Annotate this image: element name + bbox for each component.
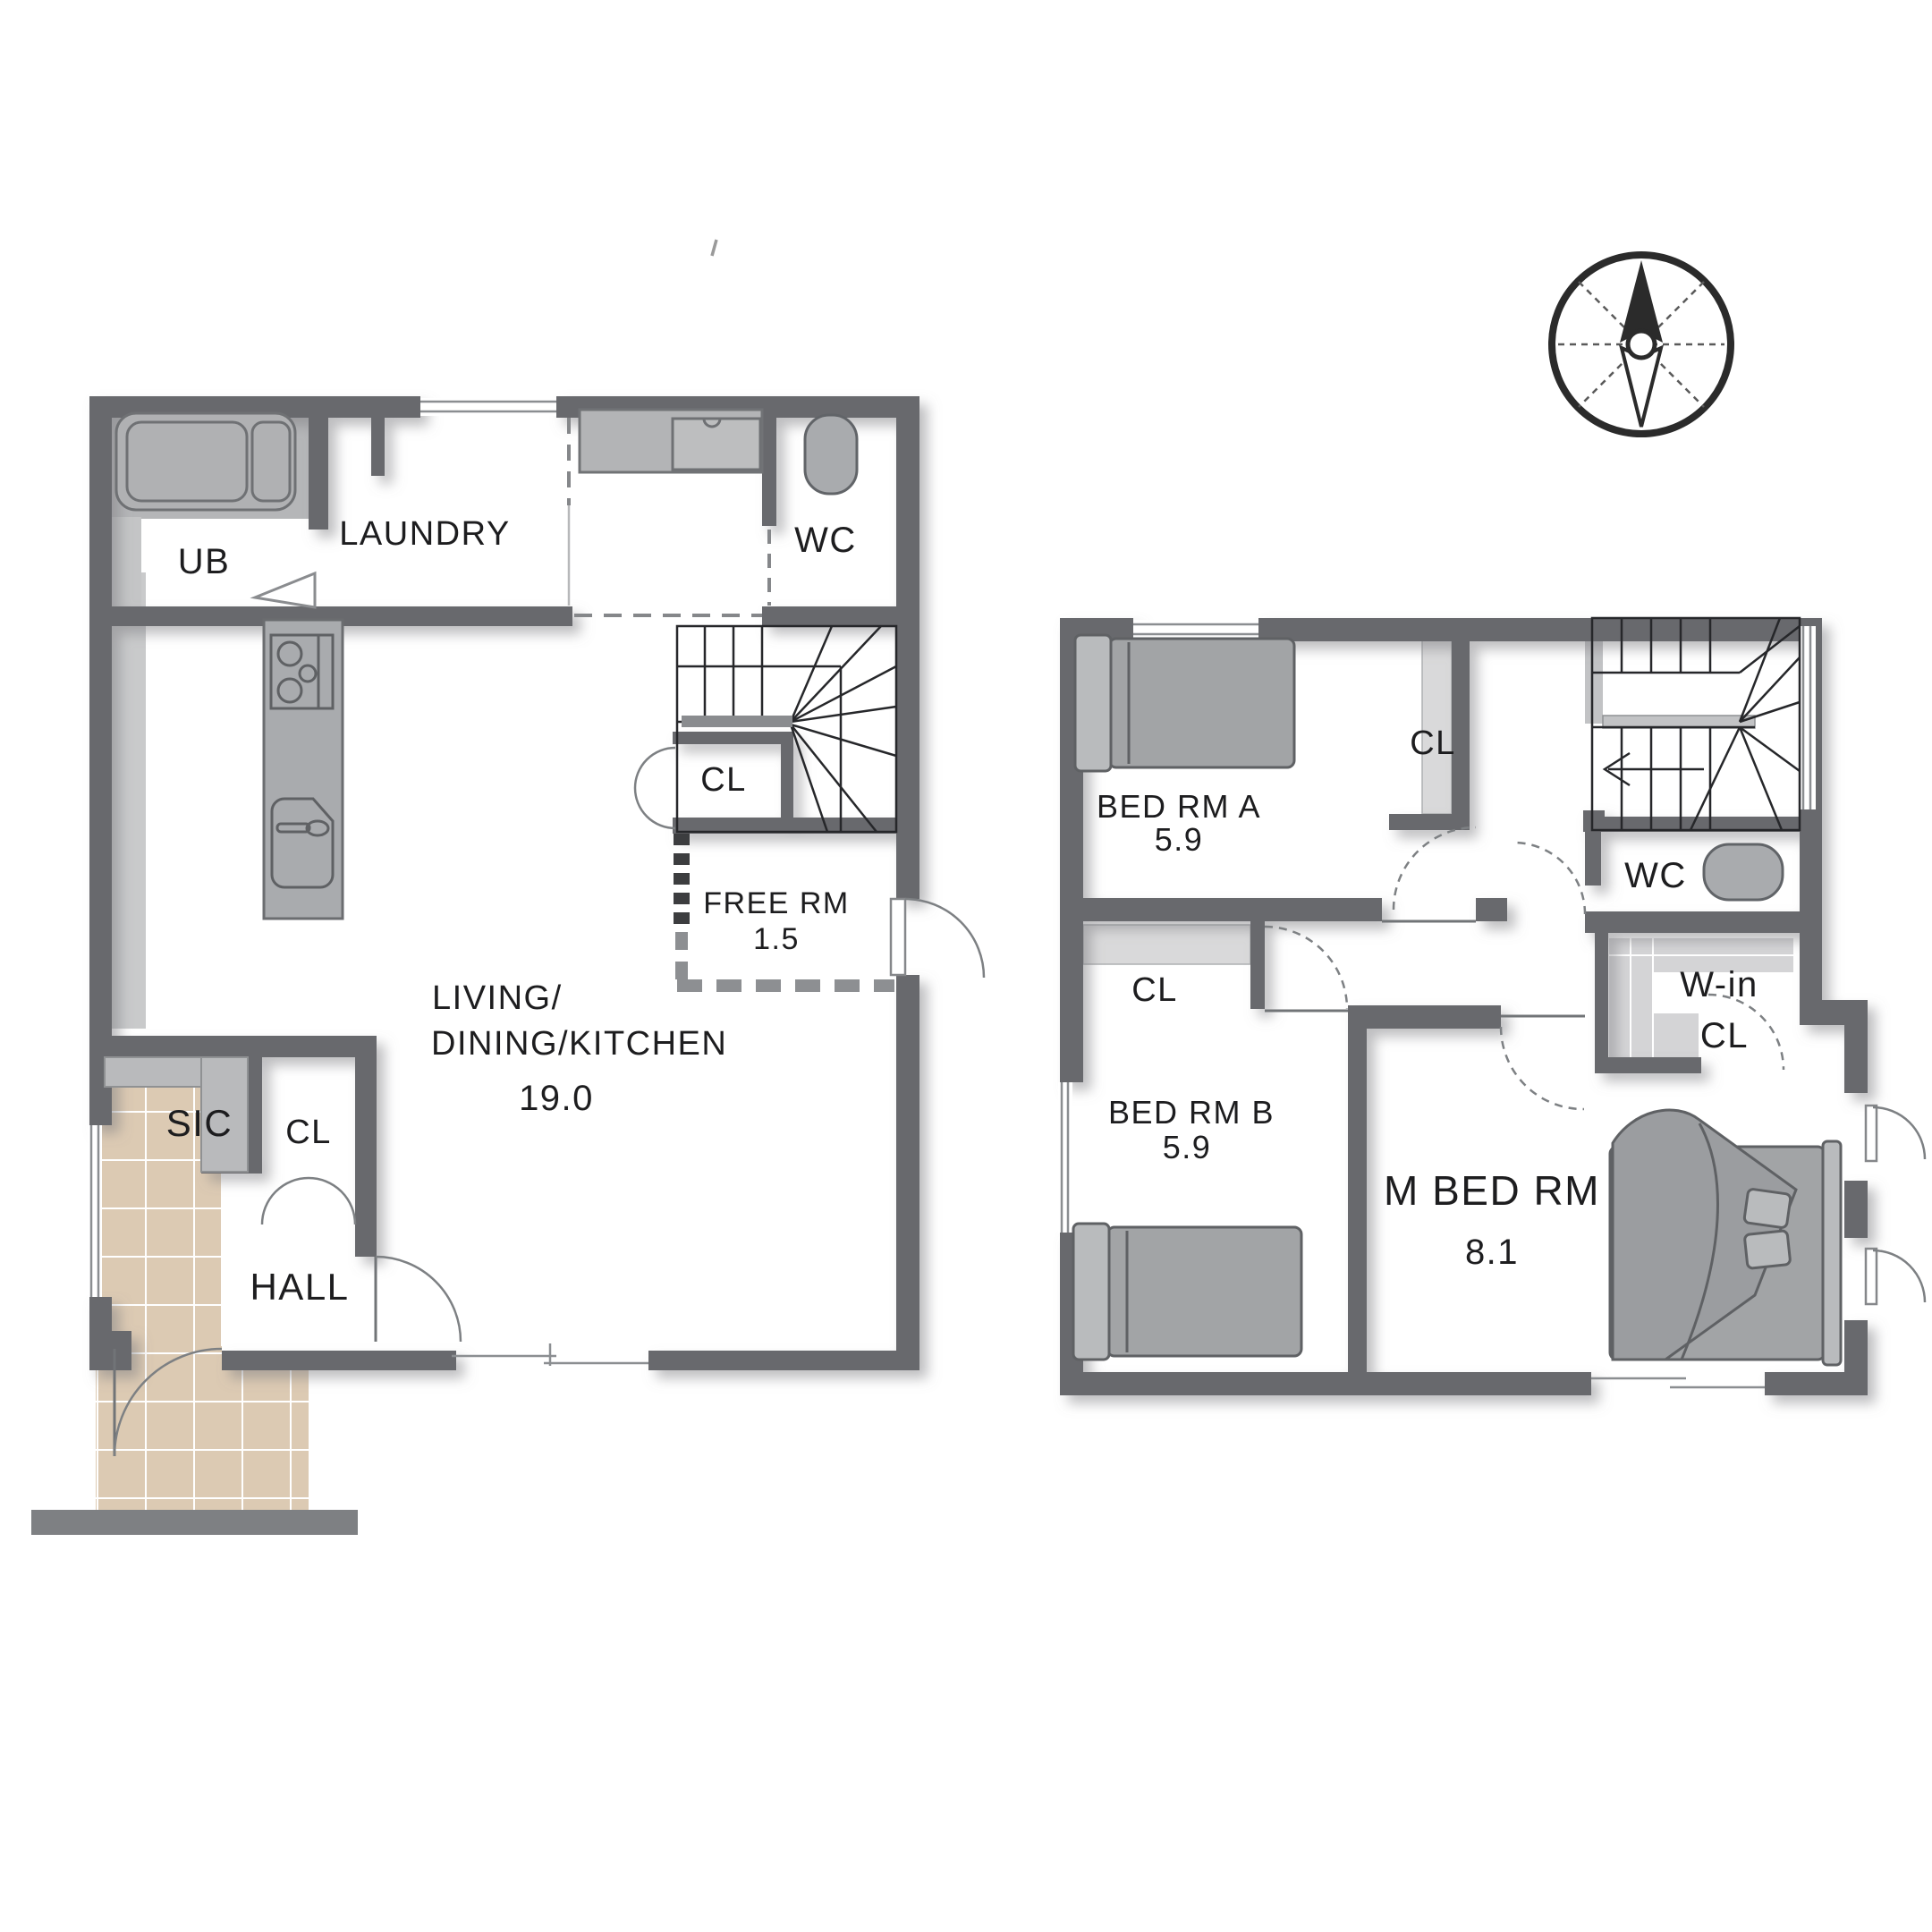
kitchen-counter [264, 620, 343, 919]
free-room-exterior-door [891, 899, 984, 978]
floor-plan-canvas: UB LAUNDRY WC CL FREE RM 1.5 LIVING/ DIN… [0, 0, 1932, 1932]
room-label-hall: HALL [250, 1266, 349, 1308]
room-label-sic: SIC [166, 1102, 233, 1144]
closet-b-band [1083, 925, 1250, 964]
balcony-door-2 [1866, 1249, 1925, 1304]
room-label-free-room: FREE RM [703, 886, 850, 920]
room-label-stair-closet: CL [700, 761, 747, 799]
stair-closet-doors [635, 748, 675, 828]
room-area-master: 8.1 [1465, 1233, 1519, 1272]
entrance-step [31, 1510, 358, 1535]
laundry-window [420, 398, 556, 416]
hall-living-door [376, 1257, 461, 1342]
room-label-hall-closet: CL [285, 1114, 332, 1151]
compass-hub [1628, 331, 1655, 358]
room-area-free-room: 1.5 [753, 922, 800, 956]
master-bed [1610, 1110, 1841, 1365]
master-door [1501, 1027, 1584, 1109]
hall-closet-doors [262, 1178, 355, 1224]
room-label-ub: UB [178, 542, 231, 581]
sic-window [88, 1125, 102, 1297]
room-label-laundry: LAUNDRY [339, 515, 510, 553]
room-area-bed-a: 5.9 [1155, 821, 1204, 858]
living-sliding-window [452, 1343, 648, 1366]
room-label-bed-a: BED RM A [1097, 788, 1261, 825]
washbasin-counter [580, 410, 762, 472]
pillow [1744, 1231, 1791, 1269]
master-window [1591, 1378, 1765, 1387]
room-label-wc2: WC [1624, 856, 1687, 895]
bed-a-window [1133, 620, 1258, 640]
room-label-bed-b: BED RM B [1108, 1094, 1275, 1131]
floor1-plan: UB LAUNDRY WC CL FREE RM 1.5 LIVING/ DIN… [31, 396, 984, 1535]
room-label-wc1: WC [794, 521, 857, 560]
room-label-closet-b: CL [1131, 971, 1178, 1009]
bed-a [1075, 635, 1294, 771]
bed-b-door [1265, 927, 1347, 1009]
compass-rose [1552, 255, 1731, 434]
stray-mark [712, 240, 716, 256]
room-label-closet-a: CL [1410, 724, 1456, 762]
room-label-ldk-line2: DINING/KITCHEN [431, 1025, 727, 1063]
bathtub [116, 413, 295, 510]
room-label-walkin-line1: W-in [1680, 965, 1758, 1004]
toilet-floor1 [805, 415, 857, 494]
wc2-door [1513, 843, 1585, 914]
bed-b-window [1058, 1082, 1072, 1233]
toilet-floor2 [1704, 844, 1783, 900]
left-wall-band [112, 572, 146, 1029]
room-area-ldk: 19.0 [519, 1079, 594, 1118]
stair1-handrail [682, 716, 792, 727]
porch-tile-floor [96, 1370, 309, 1510]
room-label-ldk-line1: LIVING/ [432, 979, 563, 1017]
stairwell-window [1800, 626, 1816, 809]
bath-fold-door [255, 573, 315, 607]
bed-b [1073, 1224, 1301, 1360]
room-label-master: M BED RM [1384, 1167, 1600, 1214]
floor2-plan: BED RM A 5.9 CL WC W-in CL CL BED RM B 5… [1058, 618, 1925, 1395]
balcony-door-1 [1866, 1106, 1925, 1161]
bed-a-door [1394, 827, 1476, 910]
room-label-walkin-line2: CL [1700, 1016, 1749, 1055]
pillow [1744, 1189, 1792, 1228]
room-area-bed-b: 5.9 [1163, 1129, 1212, 1165]
stair-direction-arrow [1605, 753, 1704, 785]
